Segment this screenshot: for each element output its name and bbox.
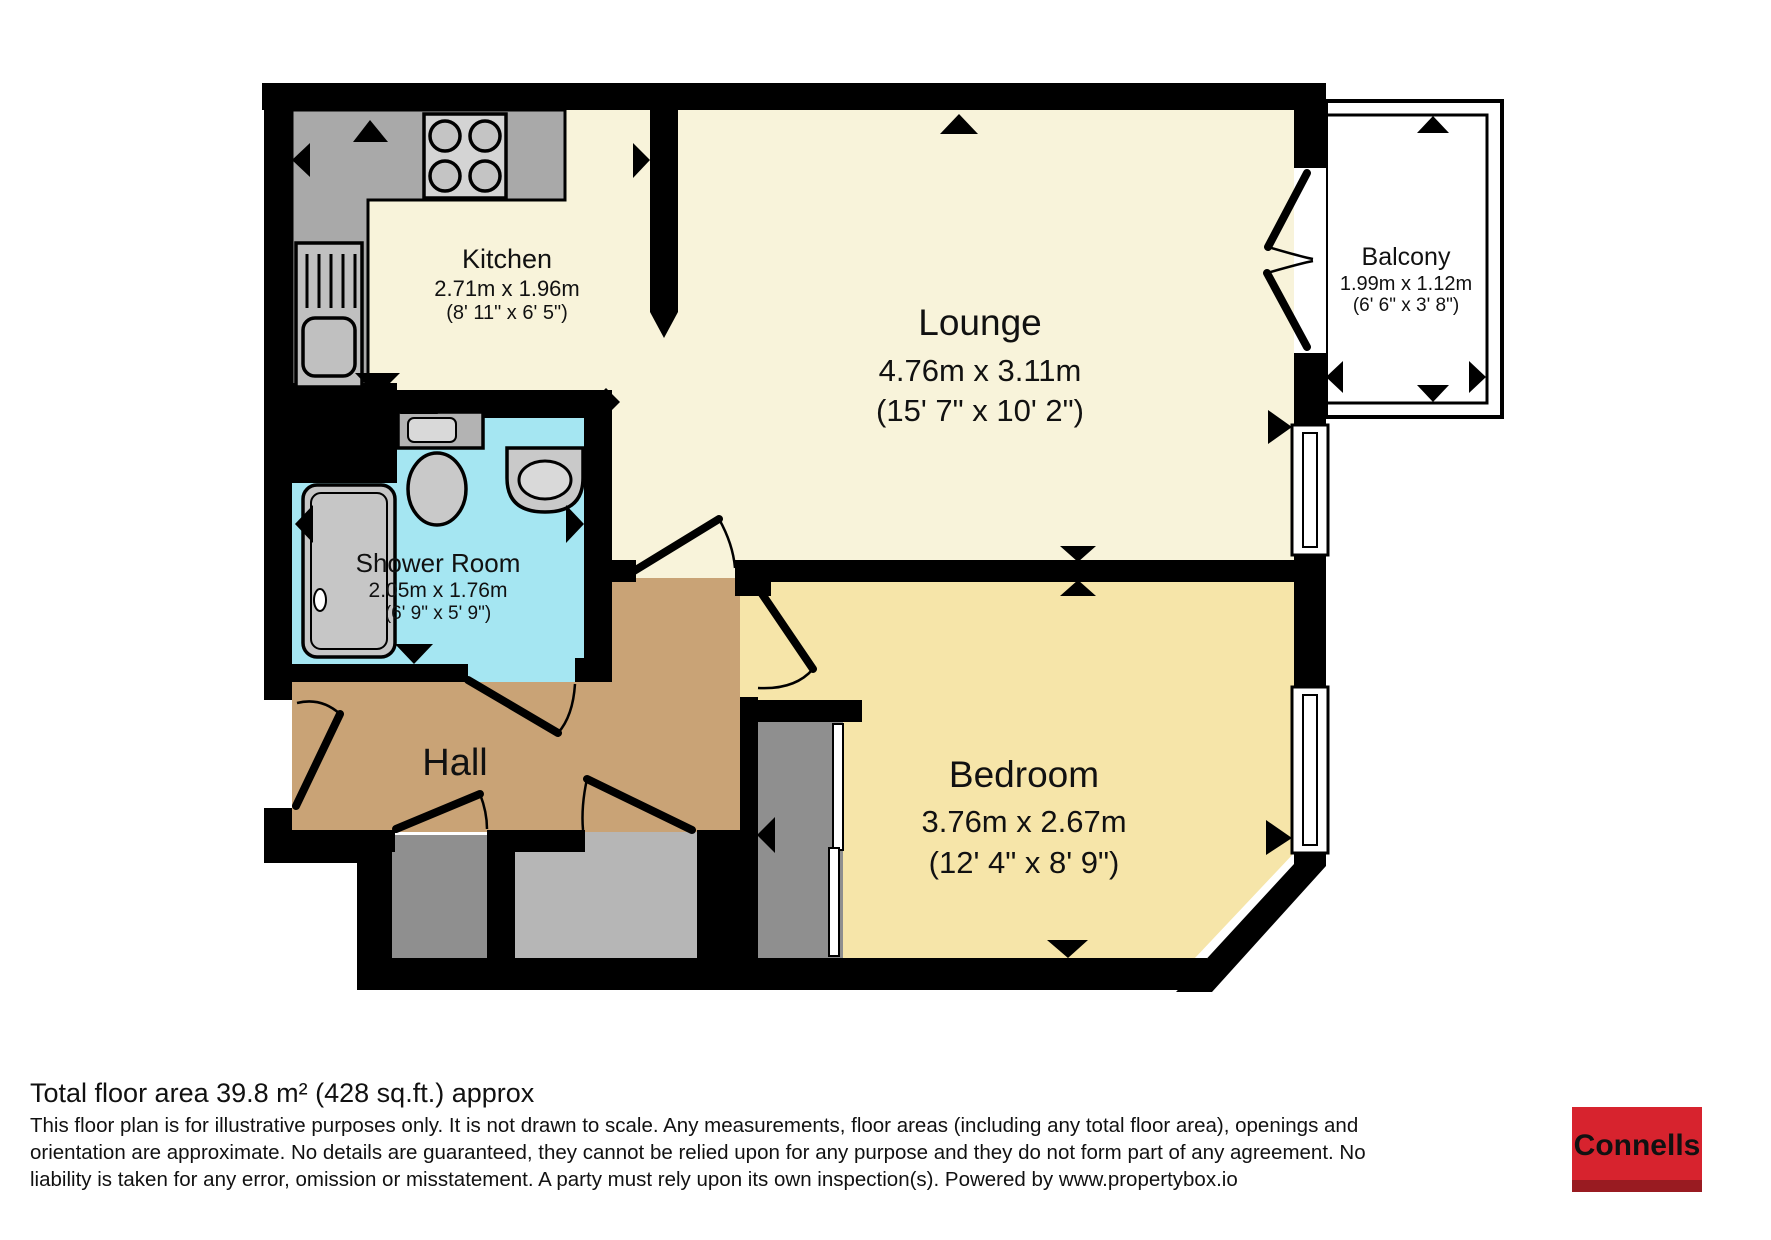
kitchen-dims-imperial: (8' 11" x 6' 5") [446, 302, 568, 324]
wall-hall-bedroom [740, 697, 758, 958]
wall-shower-bottom [292, 664, 468, 682]
wall-shower-right-stub [584, 560, 636, 582]
kitchen-sink-icon [296, 243, 362, 387]
wall-bottom [357, 958, 1207, 990]
wall-right-mid [1294, 353, 1326, 425]
shower-room-dims-metric: 2.05m x 1.76m [369, 579, 508, 602]
disclaimer-line-1: This floor plan is for illustrative purp… [30, 1114, 1358, 1137]
wall-wardrobe-top [755, 700, 862, 722]
bedroom-window-pane [1303, 695, 1317, 845]
bedroom-dims-imperial: (12' 4" x 8' 9") [929, 845, 1120, 880]
wall-lounge-bedroom [735, 560, 1326, 582]
wall-kitchen-shower-thick [264, 383, 397, 483]
disclaimer-line-2: orientation are approximate. No details … [30, 1141, 1366, 1164]
bedroom-dims-metric: 3.76m x 2.67m [921, 804, 1126, 839]
floorplan-drawing: Kitchen 2.71m x 1.96m (8' 11" x 6' 5") L… [0, 0, 1771, 1240]
lounge-dims-metric: 4.76m x 3.11m [879, 353, 1082, 388]
lounge-label: Lounge [918, 302, 1041, 343]
lounge-window-pane [1303, 433, 1317, 547]
wall-cupboard2-top [515, 830, 585, 852]
hob-icon [424, 114, 506, 198]
balcony-label: Balcony [1362, 243, 1451, 271]
hall-label: Hall [422, 742, 487, 784]
cupboard-left-floor [391, 835, 487, 958]
wall-shower-bottom-right [575, 658, 612, 682]
wall-shower-right [584, 418, 612, 682]
basin-icon [507, 448, 583, 512]
kitchen-label: Kitchen [462, 244, 552, 274]
floorplan-page: Kitchen 2.71m x 1.96m (8' 11" x 6' 5") L… [0, 0, 1771, 1240]
lounge-dims-imperial: (15' 7" x 10' 2") [876, 393, 1084, 428]
wall-top [262, 83, 1326, 110]
connells-logo: Connells [1572, 1107, 1702, 1192]
kitchen-dims-metric: 2.71m x 1.96m [434, 276, 580, 301]
bedroom-label: Bedroom [949, 754, 1099, 795]
wall-kitchen-divider [650, 110, 678, 312]
total-floor-area: Total floor area 39.8 m² (428 sq.ft.) ap… [30, 1078, 535, 1108]
shower-room-label: Shower Room [356, 548, 521, 578]
shower-room-dims-imperial: (6' 9" x 5' 9") [385, 603, 491, 624]
balcony-dims-metric: 1.99m x 1.12m [1340, 273, 1472, 295]
connells-logo-text: Connells [1574, 1129, 1701, 1162]
wall-between-cupboards [487, 830, 515, 958]
wall-right-upper [1294, 83, 1326, 168]
disclaimer-line-3: liability is taken for any error, omissi… [30, 1168, 1238, 1191]
footer: Total floor area 39.8 m² (428 sq.ft.) ap… [30, 1078, 1702, 1192]
wall-bottom-left-step [264, 832, 392, 863]
balcony-dims-imperial: (6' 6" x 3' 8") [1353, 295, 1459, 316]
front-door-opening [264, 700, 292, 808]
